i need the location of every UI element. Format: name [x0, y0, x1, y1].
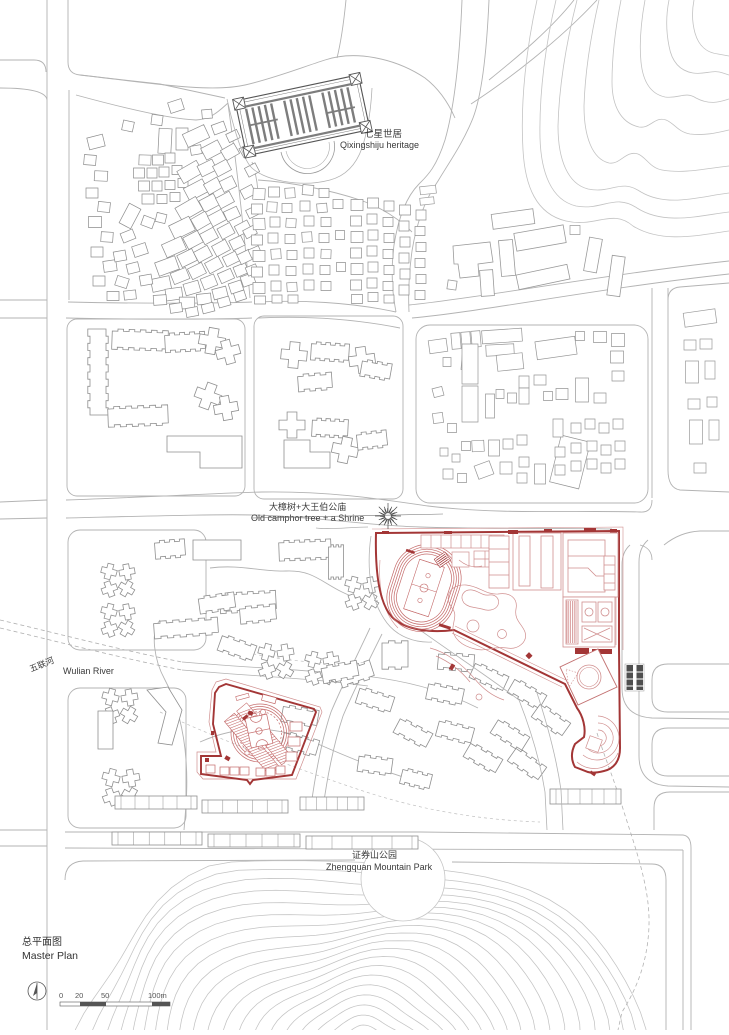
svg-text:七星世居: 七星世居: [364, 128, 402, 140]
svg-text:Wulian River: Wulian River: [63, 666, 114, 676]
svg-text:Qixingshiju heritage: Qixingshiju heritage: [340, 140, 419, 150]
svg-text:0: 0: [59, 991, 63, 1000]
svg-text:100m: 100m: [148, 991, 167, 1000]
svg-text:20: 20: [75, 991, 83, 1000]
svg-text:总平面图: 总平面图: [22, 935, 62, 948]
svg-text:50: 50: [101, 991, 109, 1000]
svg-text:大樟树+大王伯公庙: 大樟树+大王伯公庙: [269, 501, 346, 512]
svg-text:证券山公园: 证券山公园: [352, 849, 397, 860]
svg-text:Zhengquan Mountain Park: Zhengquan Mountain Park: [326, 862, 433, 872]
svg-text:Old camphor tree + a Shrine: Old camphor tree + a Shrine: [251, 513, 364, 523]
svg-text:Master Plan: Master Plan: [22, 950, 78, 962]
